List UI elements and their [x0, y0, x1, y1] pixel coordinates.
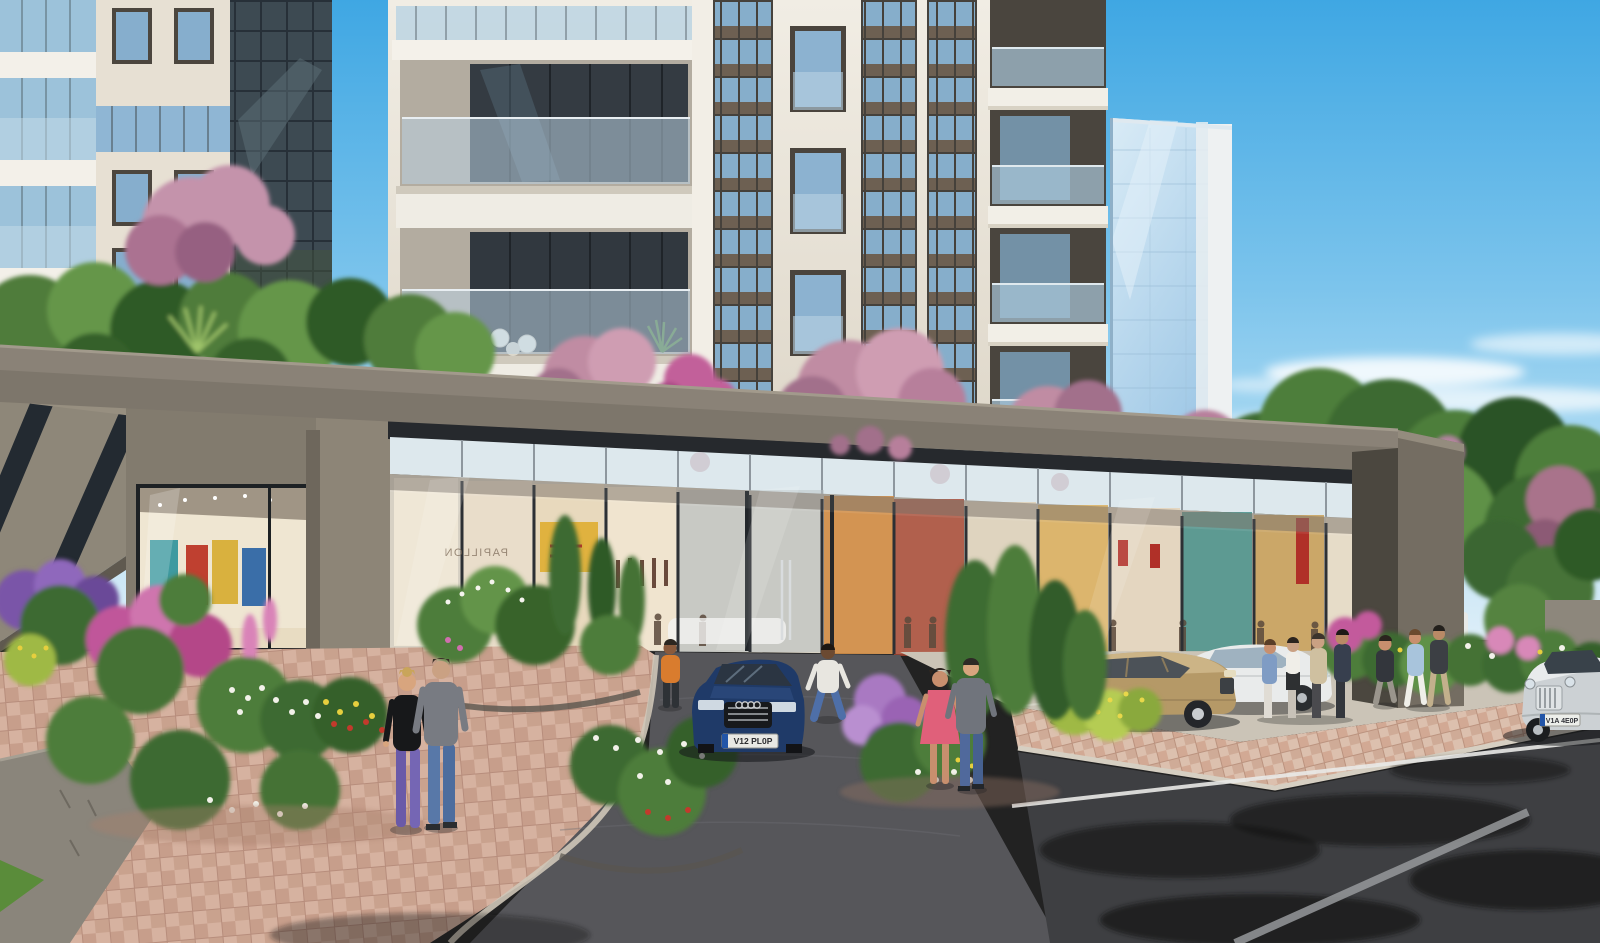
tower-balcony-stack [988, 0, 1108, 446]
reflected-sign-text: PAPILLON [443, 547, 508, 559]
rendering-canvas: Street-level architectural rendering of … [0, 0, 1600, 943]
architectural-rendering: Street-level architectural rendering of … [0, 0, 1600, 943]
glass-tower [1110, 118, 1232, 446]
tower-juliet-windows [790, 26, 846, 356]
audi-plate-text: V12 PL0P [734, 736, 773, 746]
bentley-plate-text: V1A 4E0P [1546, 718, 1579, 725]
